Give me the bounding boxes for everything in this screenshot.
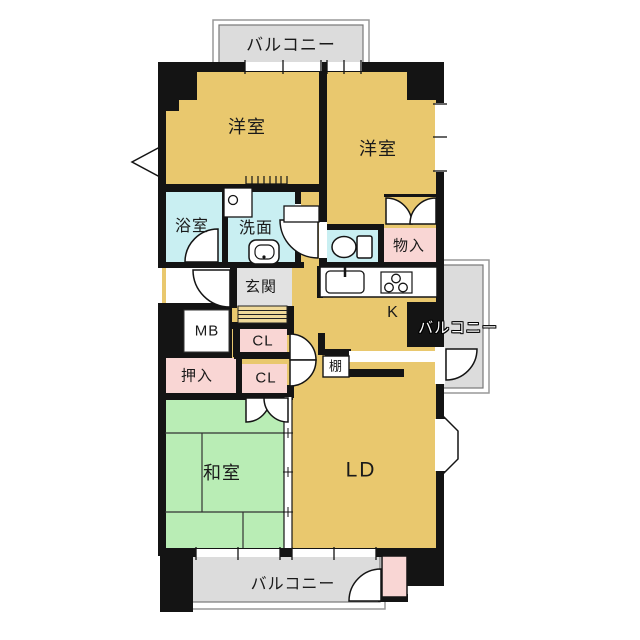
label-futon-closet: 押入 bbox=[181, 369, 213, 384]
hall-door-upper bbox=[290, 334, 316, 360]
tatami-lines bbox=[165, 433, 284, 548]
label-balcony-top: バルコニー bbox=[246, 37, 336, 54]
label-bath: 浴室 bbox=[175, 219, 209, 235]
closet-door-right bbox=[264, 398, 288, 422]
label-kitchen: K bbox=[387, 305, 399, 321]
label-western-room-right: 洋室 bbox=[359, 140, 397, 158]
storage-door-left bbox=[386, 198, 412, 224]
hall-door-lower bbox=[290, 360, 316, 386]
toilet-icon bbox=[332, 236, 372, 258]
label-balcony-right: バルコニー bbox=[418, 321, 498, 336]
kitchen-pass-through bbox=[349, 351, 437, 362]
floor-plan: バルコニー 洋室 洋室 浴室 洗面 物入 玄関 K バルコニー MB CL 押入… bbox=[0, 0, 640, 640]
washer-pan-icon bbox=[224, 188, 252, 217]
washroom-door-panel bbox=[284, 206, 319, 222]
plan-linework bbox=[0, 0, 640, 640]
stove-icon bbox=[381, 272, 412, 293]
closet-hatch bbox=[246, 176, 287, 184]
balcony-divider-marker bbox=[132, 147, 160, 177]
label-western-room-left: 洋室 bbox=[228, 118, 266, 136]
kitchen-counter bbox=[320, 267, 437, 297]
label-entrance: 玄関 bbox=[245, 280, 277, 295]
label-storage: 物入 bbox=[393, 239, 425, 254]
bay-window bbox=[444, 417, 458, 473]
label-closet-upper: CL bbox=[252, 334, 273, 349]
label-washroom: 洗面 bbox=[239, 221, 273, 237]
label-balcony-bottom: バルコニー bbox=[251, 577, 336, 593]
entrance-door bbox=[193, 270, 230, 307]
label-tatami-room: 和室 bbox=[203, 464, 241, 482]
entrance-step bbox=[238, 306, 287, 323]
label-shelf: 棚 bbox=[329, 360, 343, 373]
label-living-dining: LD bbox=[346, 460, 377, 481]
label-meter-box: MB bbox=[195, 324, 220, 339]
storage-door-right bbox=[410, 198, 436, 224]
label-closet-lower: CL bbox=[255, 371, 276, 386]
wash-basin-icon bbox=[249, 240, 279, 264]
trunk-storage bbox=[382, 556, 407, 597]
toilet-door bbox=[280, 220, 318, 258]
